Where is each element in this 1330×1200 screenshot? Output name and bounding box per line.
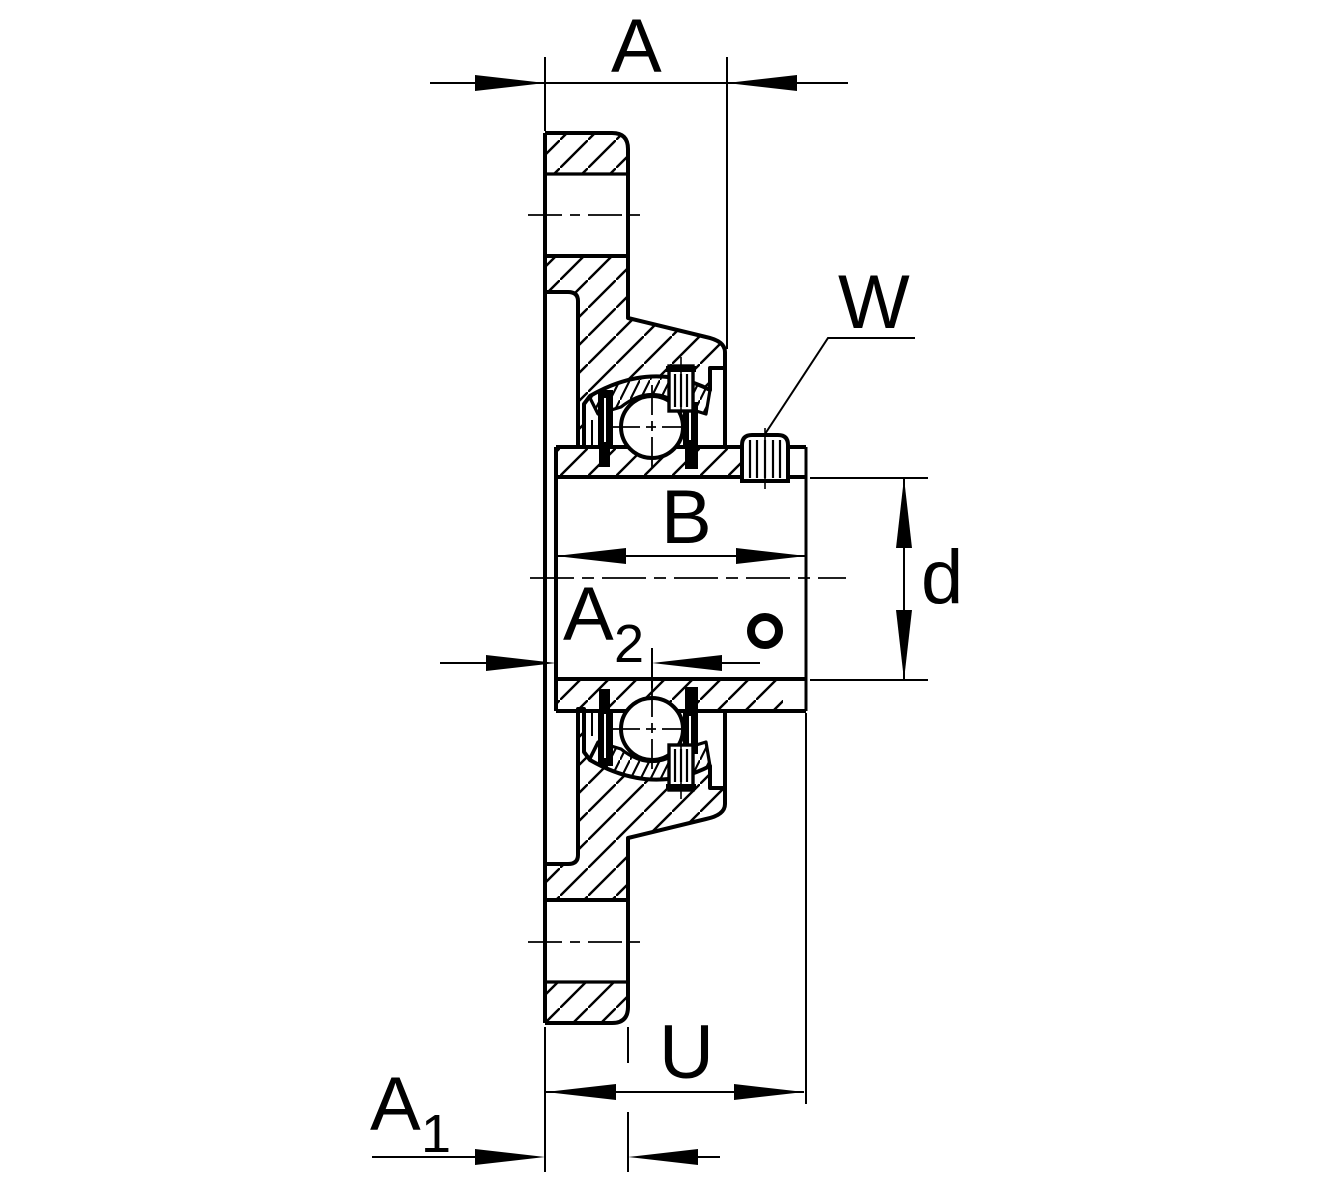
dim-label-d: d: [921, 535, 963, 620]
inner-set-screw-top: [666, 357, 696, 415]
dim-label-A1-base: A: [370, 1062, 421, 1147]
dim-label-B: B: [661, 475, 712, 560]
dim-label-A1-sub: 1: [421, 1104, 451, 1164]
technical-drawing-page: A W B d A 2 U A 1: [0, 0, 1330, 1200]
dim-label-A2-base: A: [563, 572, 614, 657]
dim-label-U: U: [659, 1010, 714, 1095]
sleeve-set-screw: [742, 428, 788, 489]
dim-label-A: A: [611, 4, 662, 89]
dim-label-W: W: [838, 260, 910, 345]
set-screw-hole: [751, 617, 779, 645]
dimension-graphics: [372, 57, 928, 1172]
inner-set-screw-bottom: [666, 741, 696, 799]
bearing-housing-section-drawing: A W B d A 2 U A 1: [0, 0, 1330, 1200]
dim-label-A2-sub: 2: [614, 614, 644, 674]
dimension-arrowheads: [475, 75, 912, 1165]
